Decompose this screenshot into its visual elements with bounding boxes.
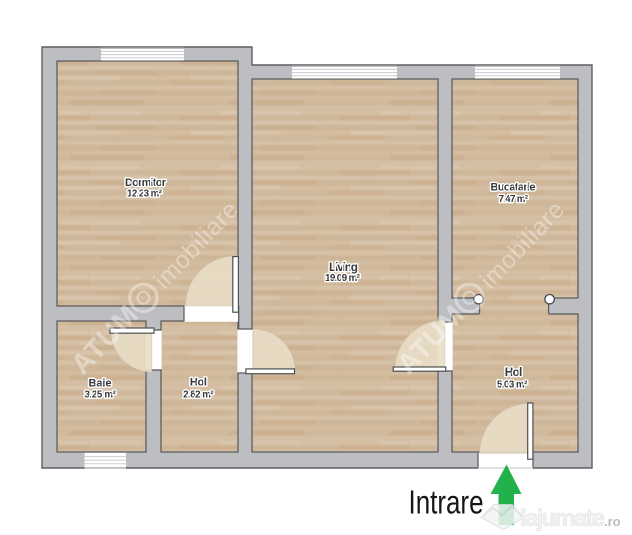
svg-text:Hol: Hol: [190, 377, 207, 389]
svg-text:12.23 m²: 12.23 m²: [127, 189, 163, 200]
svg-text:lajumate: lajumate: [520, 505, 605, 532]
svg-text:3.25 m²: 3.25 m²: [84, 390, 116, 401]
svg-text:Dormitor: Dormitor: [125, 177, 167, 189]
svg-text:Intrare: Intrare: [409, 484, 484, 521]
svg-text:Hol: Hol: [505, 365, 523, 379]
svg-text:5.03 m²: 5.03 m²: [497, 380, 528, 391]
svg-text:Bucatarie: Bucatarie: [491, 182, 536, 194]
svg-text:Living: Living: [329, 260, 358, 274]
svg-text:2.82 m²: 2.82 m²: [183, 389, 214, 400]
svg-text:7.47 m²: 7.47 m²: [499, 194, 529, 205]
svg-text:19.09 m²: 19.09 m²: [325, 273, 361, 284]
svg-text:.ro: .ro: [604, 514, 621, 529]
svg-text:Baie: Baie: [89, 377, 112, 389]
